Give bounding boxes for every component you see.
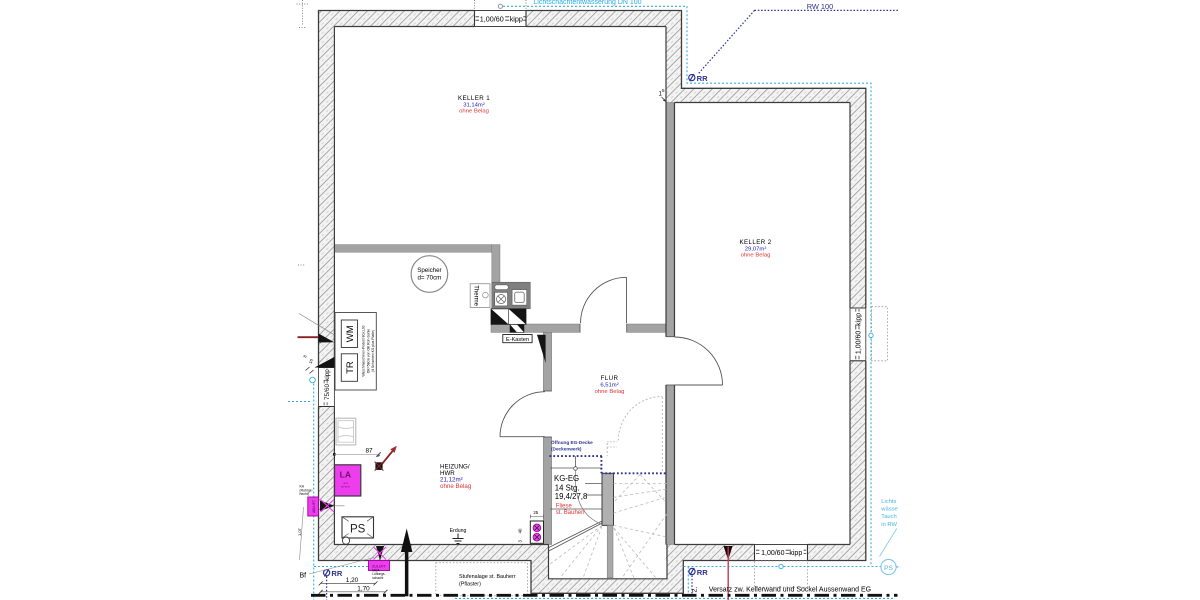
svg-text:RR: RR: [697, 74, 708, 83]
svg-text:KELLER 1: KELLER 1: [458, 95, 490, 102]
svg-text:14 Stg.: 14 Stg.: [555, 483, 580, 492]
svg-text:st. Bauherr: st. Bauherr: [556, 510, 585, 516]
svg-text:1,00/60: 1,00/60: [480, 15, 504, 24]
svg-text:31,14m²: 31,14m²: [463, 103, 485, 109]
svg-text:RW 100: RW 100: [807, 2, 834, 11]
svg-text:87: 87: [365, 447, 373, 454]
svg-text:d= 70cm: d= 70cm: [417, 275, 441, 282]
svg-text:Waschmaschinen-Podest 80x1,90: Waschmaschinen-Podest 80x1,90: [362, 325, 366, 376]
svg-text:(4 Schichten KS plus Platte): (4 Schichten KS plus Platte): [371, 330, 375, 372]
svg-text:Fliese: Fliese: [556, 503, 573, 509]
svg-text:RR: RR: [697, 568, 708, 577]
svg-text:schacht: schacht: [372, 576, 383, 580]
svg-text:wässe: wässe: [880, 507, 897, 513]
svg-text:Stufenalage st. Bauherr: Stufenalage st. Bauherr: [459, 574, 516, 580]
svg-text:Lichtschachtentwässerung DN 10: Lichtschachtentwässerung DN 100: [533, 0, 641, 6]
svg-text:2,: 2,: [692, 587, 699, 593]
svg-text:(Deckenwerk): (Deckenwerk): [551, 446, 582, 451]
svg-text:Therme: Therme: [472, 285, 478, 306]
svg-text:ohne Belag: ohne Belag: [741, 252, 771, 258]
svg-text:5: 5: [662, 88, 665, 93]
svg-text:Speicher: Speicher: [417, 267, 441, 274]
svg-text:40: 40: [518, 528, 523, 533]
svg-text:kipp: kipp: [856, 313, 863, 326]
svg-text:1,20: 1,20: [346, 577, 359, 584]
svg-text:kipp: kipp: [789, 550, 802, 557]
svg-text:kipp: kipp: [324, 369, 331, 381]
svg-text:ohne Belag: ohne Belag: [459, 109, 489, 115]
svg-text:hecht): hecht): [300, 492, 309, 496]
svg-text:ablauft: ablauft: [341, 485, 350, 489]
svg-text:WM: WM: [345, 325, 356, 342]
svg-text:KG-EG: KG-EG: [554, 474, 579, 483]
svg-text:19,4/27,8: 19,4/27,8: [555, 492, 588, 501]
svg-text:6,51m²: 6,51m²: [600, 383, 618, 389]
svg-text:Öffnung EG-Decke: Öffnung EG-Decke: [551, 439, 593, 445]
svg-text:1,70: 1,70: [357, 585, 370, 592]
svg-text:(Pflaster): (Pflaster): [459, 581, 481, 587]
svg-text:OK=58cm von OK Roh-Sohle: OK=58cm von OK Roh-Sohle: [366, 329, 370, 373]
svg-text:ohne Belag: ohne Belag: [595, 389, 625, 395]
svg-text:75/60: 75/60: [324, 384, 331, 400]
svg-text:kipp: kipp: [510, 15, 523, 24]
svg-text:Lichts: Lichts: [881, 499, 896, 505]
svg-text:1,00/60: 1,00/60: [856, 331, 863, 354]
svg-text:FLUR: FLUR: [601, 375, 619, 382]
svg-text:TR: TR: [345, 361, 356, 374]
svg-text:LA: LA: [340, 469, 351, 479]
svg-text:Tauch: Tauch: [881, 514, 896, 520]
svg-text:Bf: Bf: [300, 573, 307, 580]
svg-text:Versatz zw. Kellerwand und Soc: Versatz zw. Kellerwand und Sockel Aussen…: [709, 587, 871, 594]
svg-text:in RW: in RW: [881, 522, 897, 528]
svg-text:PS: PS: [884, 565, 893, 572]
svg-text:RR: RR: [331, 569, 342, 578]
svg-text:25: 25: [533, 510, 538, 515]
svg-text:ABLUFT: ABLUFT: [312, 500, 316, 513]
svg-text:PS: PS: [350, 524, 366, 536]
svg-text:ohne Belag: ohne Belag: [440, 483, 472, 490]
svg-text:KELLER 2: KELLER 2: [739, 239, 771, 246]
svg-text:E-Kasten: E-Kasten: [506, 337, 529, 343]
svg-text:Erdung: Erdung: [450, 528, 467, 534]
svg-text:1,00/60: 1,00/60: [761, 550, 784, 557]
svg-text:29,07m²: 29,07m²: [745, 246, 767, 252]
svg-text:1,07: 1,07: [297, 527, 302, 536]
